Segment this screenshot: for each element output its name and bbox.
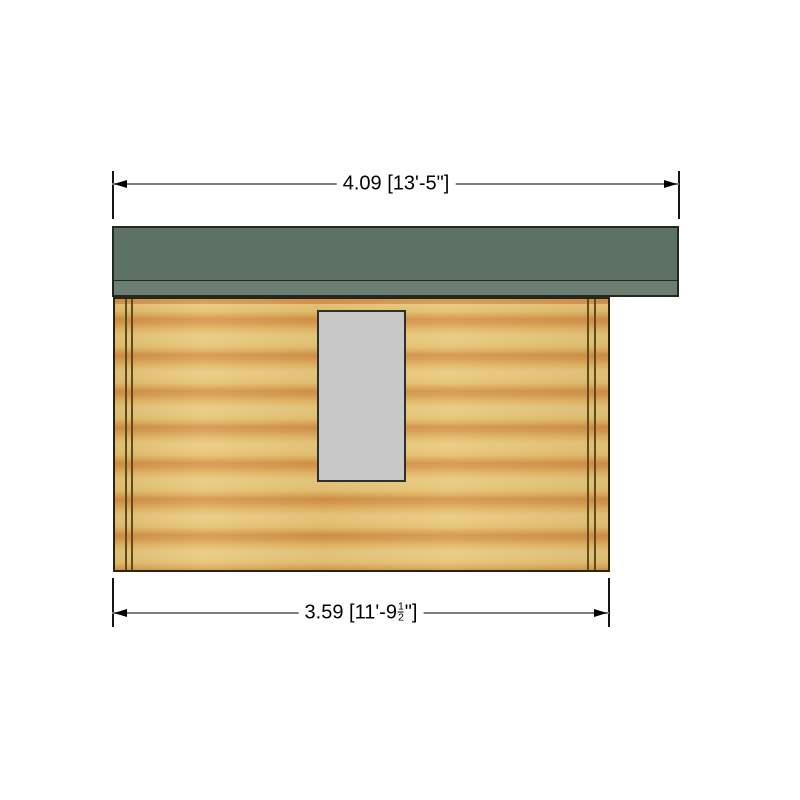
dimension-arrow-right bbox=[664, 180, 677, 188]
dimension-arrow-left bbox=[114, 180, 127, 188]
extension-line-left bbox=[112, 171, 114, 219]
fraction-numerator: 1 bbox=[398, 601, 404, 612]
window bbox=[317, 310, 406, 482]
dimension-arrow-left bbox=[114, 609, 127, 617]
corner-joint-line bbox=[587, 299, 589, 570]
corner-joint-line bbox=[125, 299, 127, 570]
roof-width-label: 4.09 [13'-5"] bbox=[337, 173, 456, 196]
dimension-text-suffix: "] bbox=[405, 602, 418, 625]
roof-fascia bbox=[114, 280, 677, 295]
extension-line-right bbox=[678, 171, 680, 219]
half-fraction: 12 bbox=[398, 601, 404, 623]
cabin-side-elevation-drawing: 4.09 [13'-5"] 3.59 [11'-912"] bbox=[0, 0, 800, 800]
roof-panel bbox=[114, 228, 677, 280]
fraction-denominator: 2 bbox=[398, 612, 404, 624]
extension-line-right bbox=[608, 578, 610, 627]
corner-joint-line bbox=[131, 299, 133, 570]
roof bbox=[112, 226, 679, 297]
wall-width-label: 3.59 [11'-912"] bbox=[299, 602, 424, 625]
dimension-text-prefix: 3.59 [11'-9 bbox=[305, 602, 397, 625]
corner-joint-line bbox=[594, 299, 596, 570]
extension-line-left bbox=[112, 578, 114, 627]
dimension-arrow-right bbox=[594, 609, 607, 617]
